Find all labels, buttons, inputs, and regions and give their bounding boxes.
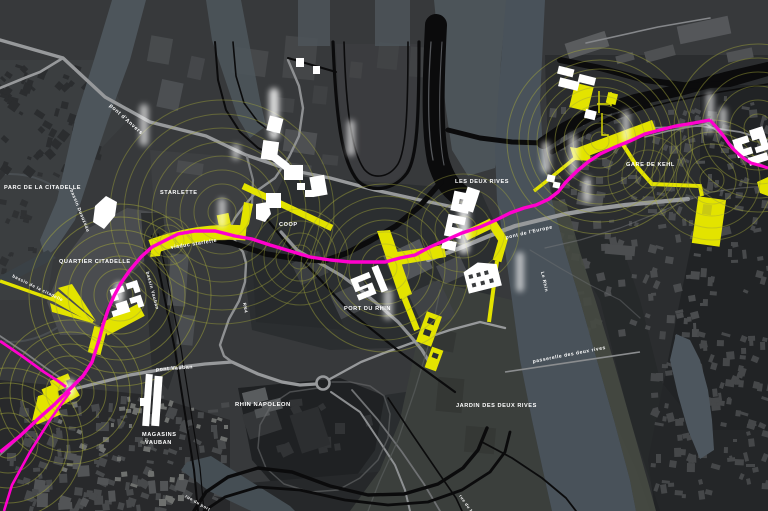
svg-text:STARLETTE: STARLETTE xyxy=(160,190,197,196)
svg-text:PORT DU RHIN: PORT DU RHIN xyxy=(344,306,391,312)
svg-text:VAUBAN: VAUBAN xyxy=(145,440,172,446)
svg-text:GARE DE KEHL: GARE DE KEHL xyxy=(626,162,675,168)
svg-text:MAGASINS: MAGASINS xyxy=(142,432,177,438)
svg-text:LES DEUX RIVES: LES DEUX RIVES xyxy=(455,179,509,185)
svg-text:QUARTIER CITADELLE: QUARTIER CITADELLE xyxy=(59,259,131,265)
svg-text:JARDIN DES DEUX RIVES: JARDIN DES DEUX RIVES xyxy=(456,403,537,409)
svg-text:RHIN NAPOLEON: RHIN NAPOLEON xyxy=(235,402,291,408)
svg-text:COOP: COOP xyxy=(279,222,298,228)
